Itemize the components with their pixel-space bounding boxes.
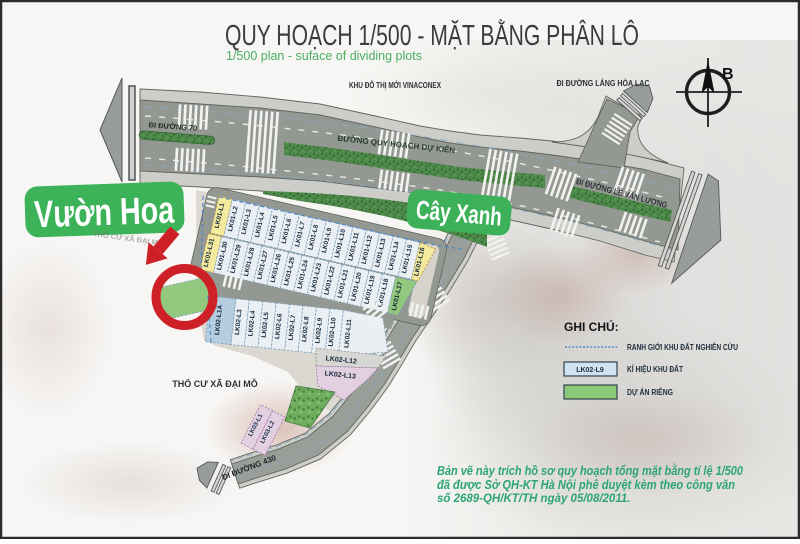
- svg-text:B: B: [722, 66, 734, 83]
- svg-text:DỰ ÁN RIÊNG: DỰ ÁN RIÊNG: [627, 388, 673, 397]
- svg-text:Vườn Hoa: Vườn Hoa: [33, 190, 175, 237]
- svg-text:GHI CHÚ:: GHI CHÚ:: [564, 319, 619, 334]
- svg-text:KÍ HIỆU KHU ĐẤT: KÍ HIỆU KHU ĐẤT: [627, 364, 683, 374]
- svg-text:RANH GIỚI KHU ĐẤT NGHIÊN CỨU: RANH GIỚI KHU ĐẤT NGHIÊN CỨU: [627, 342, 738, 352]
- svg-text:Bản vẽ này trích hồ sơ quy hoạ: Bản vẽ này trích hồ sơ quy hoạch tổng mặ…: [437, 463, 743, 478]
- svg-text:số 2689-QH/KT/TH ngày 05/08/20: số 2689-QH/KT/TH ngày 05/08/2011.: [437, 493, 630, 505]
- svg-text:đã được Sở QH-KT Hà Nội phê du: đã được Sở QH-KT Hà Nội phê duyệt kèm th…: [437, 478, 735, 492]
- svg-text:1/500 plan - suface of dividin: 1/500 plan - suface of dividing plots: [226, 49, 422, 63]
- svg-text:LK02-L9: LK02-L9: [576, 367, 604, 374]
- svg-text:THỔ CƯ XÃ ĐẠI MỖ: THỔ CƯ XÃ ĐẠI MỖ: [172, 378, 257, 389]
- svg-text:QUY HOẠCH 1/500 - MẶT BẰNG PHÂ: QUY HOẠCH 1/500 - MẶT BẰNG PHÂN LÔ: [225, 20, 639, 52]
- svg-text:KHU ĐÔ THỊ MỚI VINACONEX: KHU ĐÔ THỊ MỚI VINACONEX: [349, 81, 442, 90]
- svg-text:ĐI ĐƯỜNG LÁNG HÒA LẠC: ĐI ĐƯỜNG LÁNG HÒA LẠC: [557, 79, 650, 88]
